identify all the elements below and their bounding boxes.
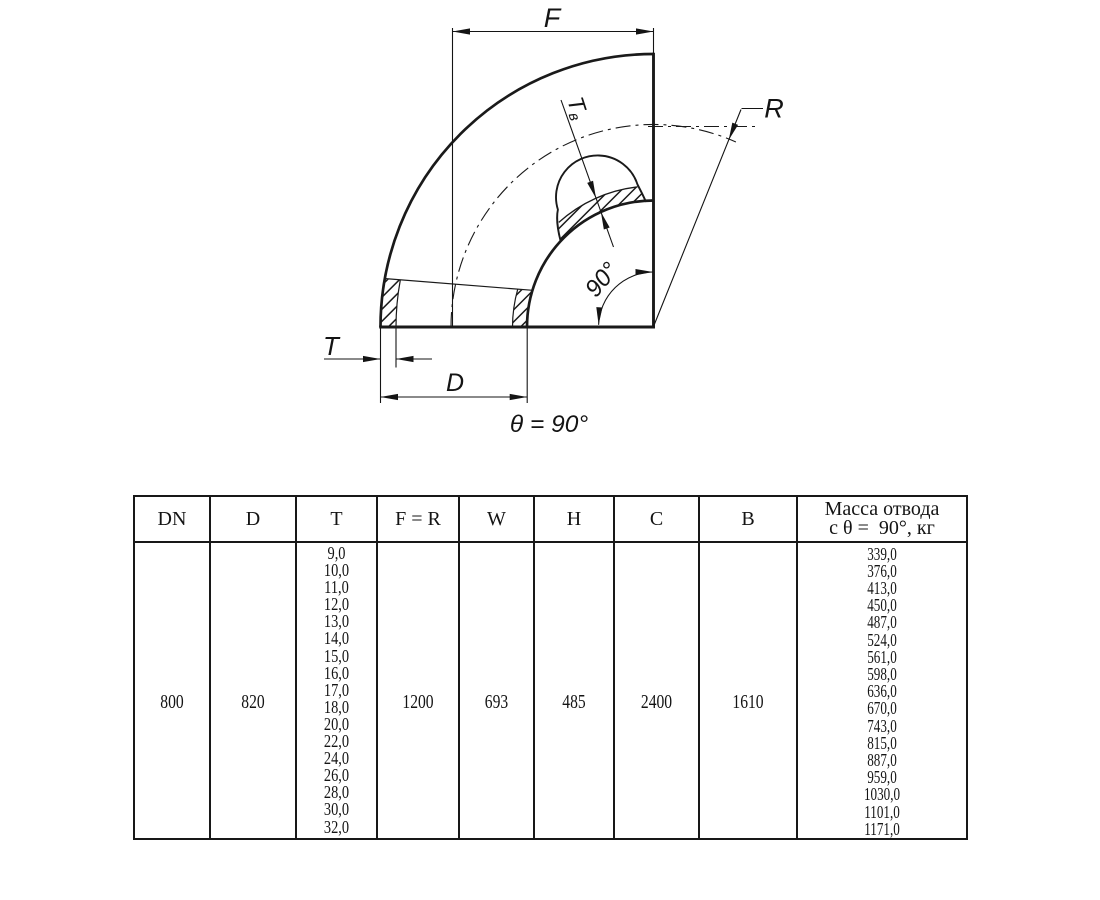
svg-text:D: D [446, 369, 464, 397]
svg-text:Тв: Тв [560, 94, 593, 124]
svg-text:T: T [323, 331, 341, 361]
svg-text:F: F [544, 3, 562, 33]
svg-text:R: R [764, 94, 784, 124]
svg-text:90°: 90° [580, 257, 624, 302]
svg-text:θ = 90°: θ = 90° [510, 411, 588, 438]
